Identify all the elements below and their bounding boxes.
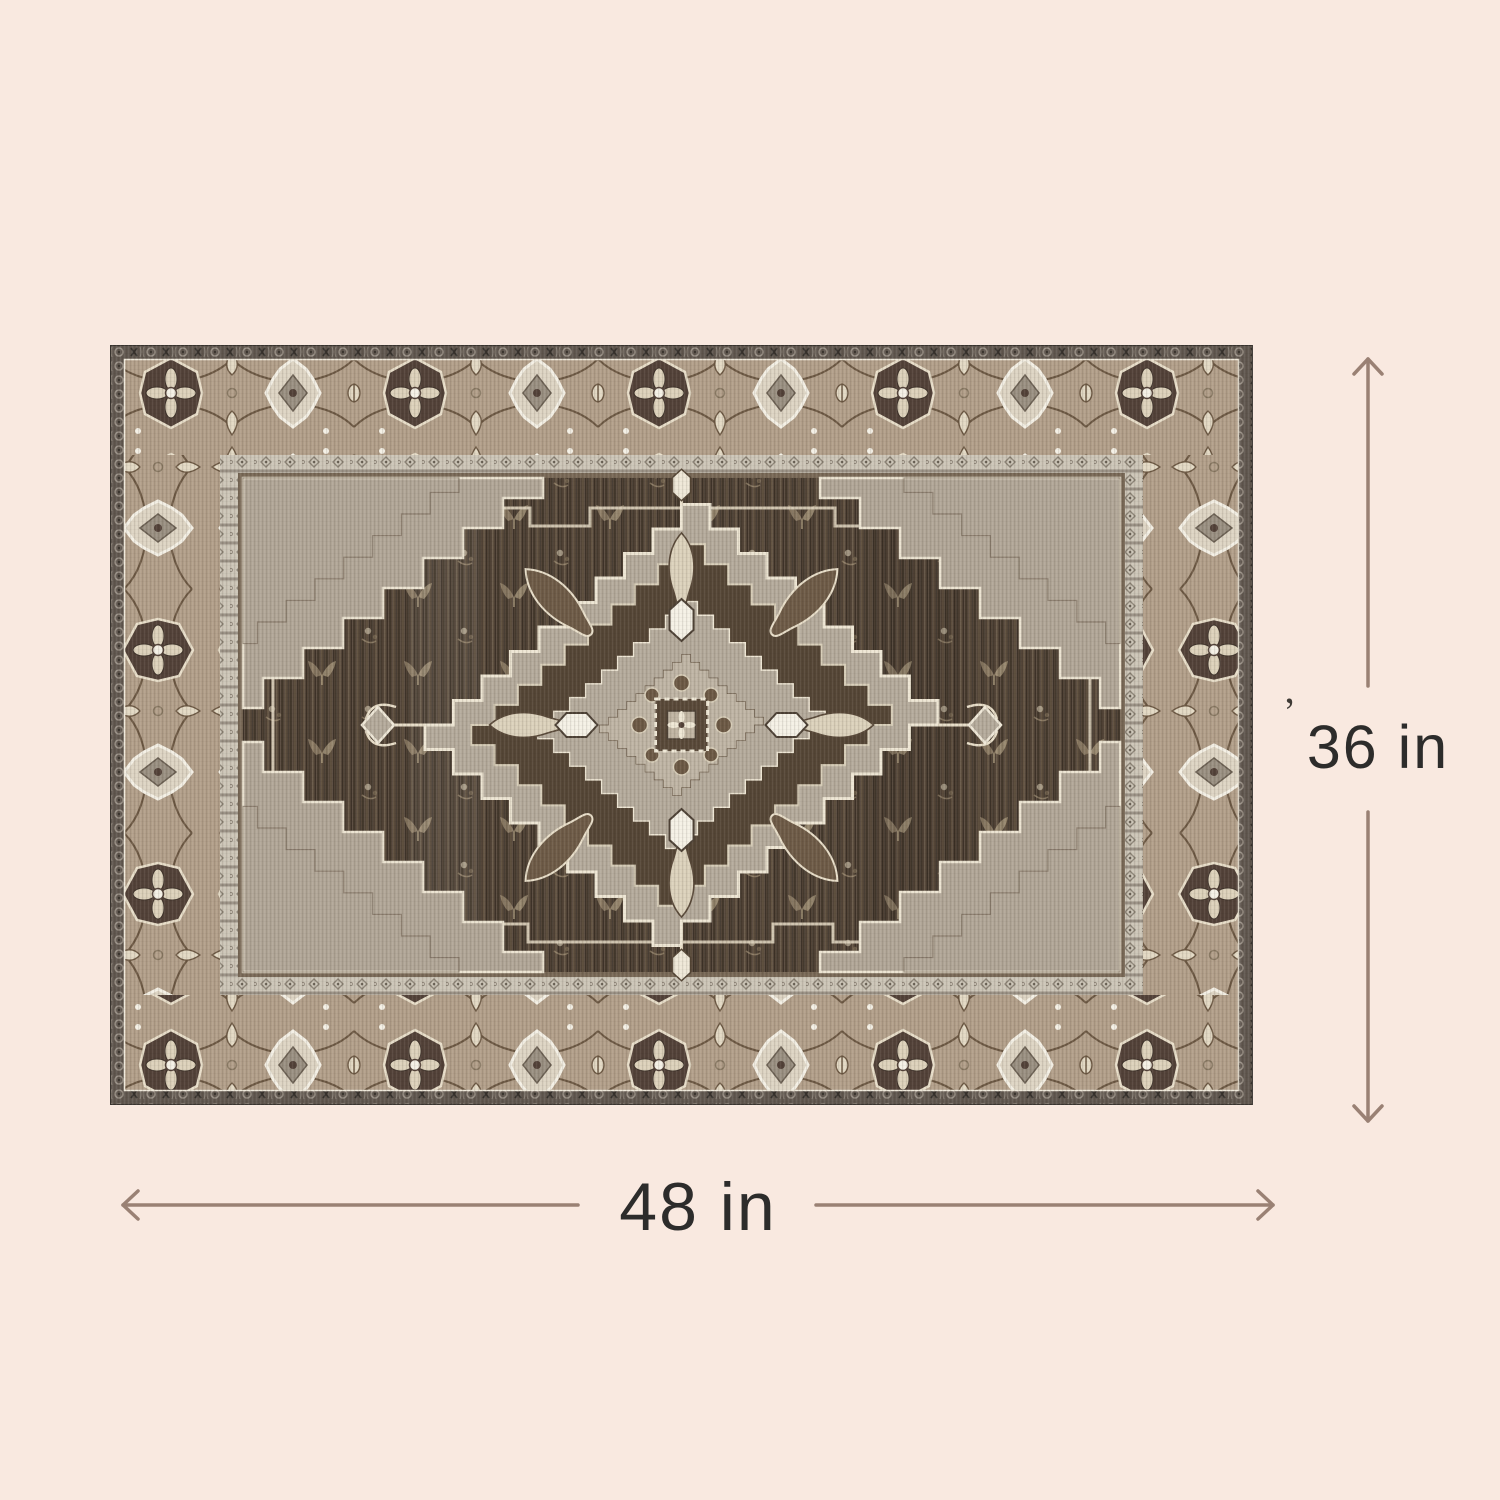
arrow-left-icon — [123, 1191, 138, 1219]
rug-image — [110, 345, 1253, 1105]
arrow-right-icon — [1258, 1191, 1273, 1219]
rug-weave-texture — [110, 345, 1253, 1105]
rug-graphic — [110, 345, 1253, 1105]
height-dimension-label: 36 in — [1307, 712, 1449, 782]
product-dimension-image: 36 in 48 in ’ — [0, 0, 1500, 1500]
stray-apostrophe-mark: ’ — [1281, 687, 1301, 735]
arrow-up-icon — [1354, 359, 1382, 374]
arrow-down-icon — [1354, 1106, 1382, 1121]
width-dimension-label: 48 in — [619, 1168, 776, 1246]
